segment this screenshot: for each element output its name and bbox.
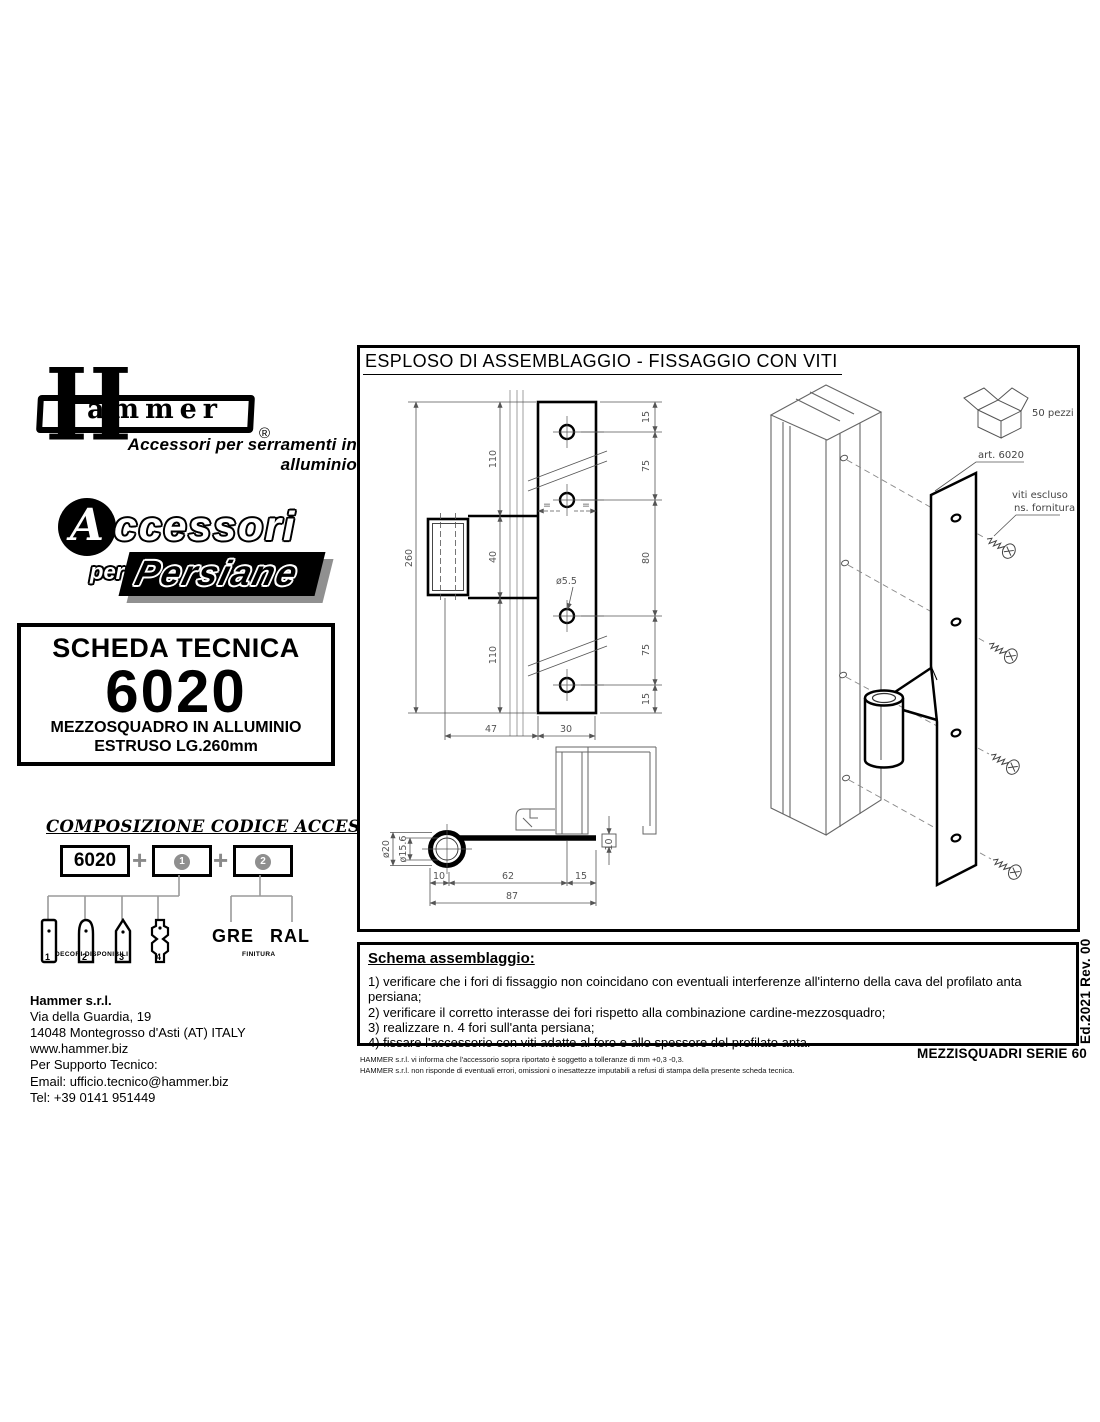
dim-tube-od: ø20	[381, 840, 392, 858]
legal-disclaimer: HAMMER s.r.l. vi informa che l'accessori…	[360, 1055, 1000, 1077]
assembly-instructions-box: Schema assemblaggio: 1) verificare che i…	[357, 942, 1079, 1046]
svg-text:47: 47	[485, 724, 497, 735]
persiane-logo-per: per	[90, 559, 124, 585]
persiane-logo-a-icon: A	[58, 498, 116, 556]
svg-text:15: 15	[641, 411, 652, 423]
assembly-step-3: 3) realizzare n. 4 fori sull'anta persia…	[368, 1020, 1068, 1035]
carton-box-icon	[964, 388, 1028, 438]
persiane-logo-word2: Persiane	[131, 554, 303, 594]
front-view: 260 110 40 110	[404, 390, 662, 740]
svg-text:=: =	[543, 500, 551, 511]
svg-text:1: 1	[45, 952, 50, 962]
assembly-steps: 1) verificare che i fori di fissaggio no…	[368, 974, 1068, 1051]
assembly-step-1: 1) verificare che i fori di fissaggio no…	[368, 974, 1068, 1005]
dim-total-length: 260	[404, 549, 415, 567]
company-name: Hammer s.r.l.	[30, 993, 246, 1009]
hammer-tagline: Accessori per serramenti in alluminio	[95, 435, 357, 475]
plus-sign-1: +	[132, 847, 147, 873]
finish-gre: GRE	[212, 926, 254, 947]
exploded-view-panel: ESPLOSO DI ASSEMBLAGGIO - FISSAGGIO CON …	[357, 345, 1080, 932]
finish-ral: RAL	[270, 926, 310, 947]
exploded-3d-view: 50 pezzi art. 6020 viti escluso ns. forn…	[771, 385, 1075, 885]
part-number-label: art. 6020	[978, 450, 1024, 461]
screw-icon	[983, 532, 1023, 881]
decori-caption: DECORI DISPONIBILI	[55, 951, 128, 958]
svg-text:30: 30	[560, 724, 572, 735]
article-code: 6020	[21, 664, 331, 719]
svg-text:110: 110	[488, 450, 499, 468]
assembly-title: Schema assemblaggio:	[368, 950, 535, 967]
decoro-icon-4: 4	[148, 918, 172, 966]
svg-text:10: 10	[604, 838, 615, 850]
code-tree-lines	[30, 874, 330, 924]
hammer-logo-word: ammer	[87, 396, 223, 423]
dim-tube-id: ø15.6	[398, 836, 409, 863]
decoro-icon-1: 1	[38, 918, 60, 966]
section-view: 10 ø20 ø15.6	[381, 747, 656, 906]
svg-text:75: 75	[641, 460, 652, 472]
code-box-decoro: 1	[152, 845, 212, 877]
tech-sheet-box: SCHEDA TECNICA 6020 MEZZOSQUADRO IN ALLU…	[17, 623, 335, 766]
company-website[interactable]: www.hammer.biz	[30, 1041, 246, 1057]
company-support-label: Per Supporto Tecnico:	[30, 1057, 246, 1073]
company-address-1: Via della Guardia, 19	[30, 1009, 246, 1025]
code-box-finitura: 2	[233, 845, 293, 877]
svg-text:110: 110	[488, 646, 499, 664]
accessori-persiane-logo: A ccessori per Persiane	[40, 495, 340, 615]
svg-text:15: 15	[575, 871, 587, 882]
datasheet-page: H ammer ® Accessori per serramenti in al…	[0, 0, 1100, 1422]
company-block: Hammer s.r.l. Via della Guardia, 19 1404…	[30, 993, 246, 1106]
screw-note-1: viti escluso	[1012, 490, 1068, 501]
svg-text:80: 80	[641, 552, 652, 564]
svg-text:4: 4	[156, 952, 161, 962]
plus-sign-2: +	[213, 847, 228, 873]
disclaimer-line-1: HAMMER s.r.l. vi informa che l'accessori…	[360, 1055, 1000, 1066]
svg-text:10: 10	[433, 871, 445, 882]
article-description-2: ESTRUSO LG.260mm	[21, 738, 331, 756]
svg-text:40: 40	[488, 551, 499, 563]
code-box-base: 6020	[60, 845, 130, 877]
company-phone: Tel: +39 0141 951449	[30, 1090, 246, 1106]
assembly-step-2: 2) verificare il corretto interasse dei …	[368, 1005, 1068, 1020]
screw-note-2: ns. fornitura	[1014, 503, 1075, 514]
decoro-icon-2: 2	[75, 918, 97, 966]
finitura-slot-number: 2	[255, 854, 271, 870]
decoro-icon-3: 3	[112, 918, 134, 966]
hammer-logo: H ammer ® Accessori per serramenti in al…	[15, 355, 355, 470]
svg-text:15: 15	[641, 693, 652, 705]
svg-text:=: =	[582, 500, 590, 511]
edition-revision: Ed.2021 Rev. 00	[1078, 938, 1093, 1044]
finish-caption: FINITURA	[242, 951, 276, 958]
persiane-logo-box: Persiane	[119, 552, 326, 596]
svg-text:75: 75	[641, 644, 652, 656]
decoro-slot-number: 1	[174, 854, 190, 870]
technical-drawing: 260 110 40 110	[360, 348, 1077, 929]
company-email[interactable]: Email: ufficio.tecnico@hammer.biz	[30, 1074, 246, 1090]
article-description-1: MEZZOSQUADRO IN ALLUMINIO	[21, 719, 331, 737]
company-address-2: 14048 Montegrosso d'Asti (AT) ITALY	[30, 1025, 246, 1041]
disclaimer-line-2: HAMMER s.r.l. non risponde di eventuali …	[360, 1066, 1000, 1077]
dim-hole-diameter: ø5.5	[556, 576, 577, 587]
svg-text:87: 87	[506, 891, 518, 902]
svg-text:62: 62	[502, 871, 514, 882]
persiane-logo-word1: ccessori	[114, 503, 296, 550]
pack-quantity-label: 50 pezzi	[1032, 408, 1074, 419]
